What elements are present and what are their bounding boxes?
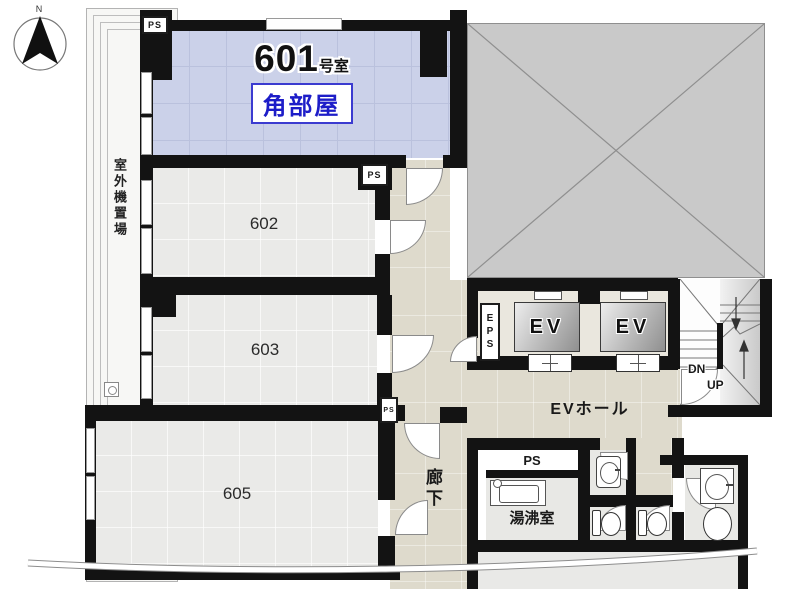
room-603-number: 603 bbox=[251, 340, 279, 360]
outdoor-unit-label: 室外機置場 bbox=[110, 158, 129, 238]
wall bbox=[467, 278, 678, 291]
wall bbox=[450, 10, 467, 162]
window bbox=[141, 307, 152, 352]
window bbox=[141, 355, 152, 399]
ps-box-label: PS bbox=[148, 20, 162, 30]
elevator-car: EV bbox=[514, 302, 580, 352]
wall bbox=[572, 356, 618, 370]
wall bbox=[760, 279, 772, 417]
void-x-icon bbox=[468, 24, 764, 277]
wall bbox=[443, 155, 467, 168]
eps-shaft: EPS bbox=[480, 303, 500, 361]
wall bbox=[578, 438, 590, 552]
wall bbox=[738, 455, 748, 552]
window bbox=[141, 72, 152, 114]
wall bbox=[440, 407, 467, 423]
window bbox=[141, 180, 152, 225]
wall bbox=[738, 552, 748, 589]
window bbox=[86, 428, 95, 473]
room-602-label: 602 bbox=[153, 168, 375, 280]
void-area bbox=[467, 23, 765, 278]
floor-plan-canvas: N 室外機置場 PS bbox=[0, 0, 800, 589]
stairs-up-label: UP bbox=[707, 378, 724, 392]
ev-hall-label: EVホール bbox=[467, 395, 713, 419]
elevator-label: EV bbox=[616, 316, 651, 339]
room-601-number: 601 bbox=[254, 38, 319, 79]
window bbox=[141, 117, 152, 155]
room-601-suffix: 号室 bbox=[319, 58, 349, 75]
corner-room-badge: 角部屋 bbox=[251, 83, 353, 124]
wall bbox=[660, 455, 748, 465]
window bbox=[266, 18, 342, 30]
kitchen-sink-icon bbox=[490, 480, 546, 506]
elevator-label: EV bbox=[530, 316, 565, 339]
wall bbox=[378, 536, 395, 580]
washbasin-icon bbox=[596, 456, 621, 488]
toilet-icon bbox=[703, 507, 732, 541]
toilet-icon bbox=[592, 510, 601, 536]
washbasin-icon bbox=[700, 468, 734, 504]
wall bbox=[467, 291, 478, 338]
kitchenette-label: 湯沸室 bbox=[486, 507, 578, 528]
room-603-label: 603 bbox=[153, 295, 377, 405]
elevator-car: EV bbox=[600, 302, 666, 352]
room-605-label: 605 bbox=[96, 420, 378, 568]
ps-box: PS bbox=[380, 397, 398, 423]
room-601-title: 601号室 角部屋 bbox=[153, 38, 450, 124]
room-602-number: 602 bbox=[250, 214, 278, 234]
wall bbox=[467, 540, 748, 552]
ps-box-label: PS bbox=[383, 407, 394, 414]
elevator-door bbox=[528, 354, 572, 372]
eps-label: EPS bbox=[485, 313, 496, 352]
wall bbox=[85, 405, 405, 421]
toilet-icon bbox=[638, 510, 647, 536]
wall bbox=[578, 278, 600, 304]
stairs-dn-label: DN bbox=[688, 362, 705, 376]
wall bbox=[486, 470, 578, 478]
elevator-door bbox=[616, 354, 660, 372]
wall bbox=[377, 295, 392, 335]
drain-icon bbox=[104, 382, 119, 397]
toilet-icon bbox=[647, 512, 667, 536]
toilet-icon bbox=[601, 512, 621, 536]
elevator-call-panel bbox=[620, 291, 648, 300]
window bbox=[86, 476, 95, 520]
corridor-label: 廊下 bbox=[420, 468, 445, 510]
room-605-number: 605 bbox=[223, 484, 251, 504]
ps-room: PS bbox=[486, 450, 578, 471]
wall bbox=[85, 568, 400, 580]
wall bbox=[668, 279, 680, 369]
elevator-call-panel bbox=[534, 291, 562, 300]
ps-room-label: PS bbox=[523, 453, 540, 468]
compass-icon bbox=[10, 12, 70, 74]
bottom-strip-area bbox=[478, 552, 738, 589]
window bbox=[141, 228, 152, 274]
ps-box: PS bbox=[142, 16, 168, 34]
wall bbox=[467, 438, 478, 589]
